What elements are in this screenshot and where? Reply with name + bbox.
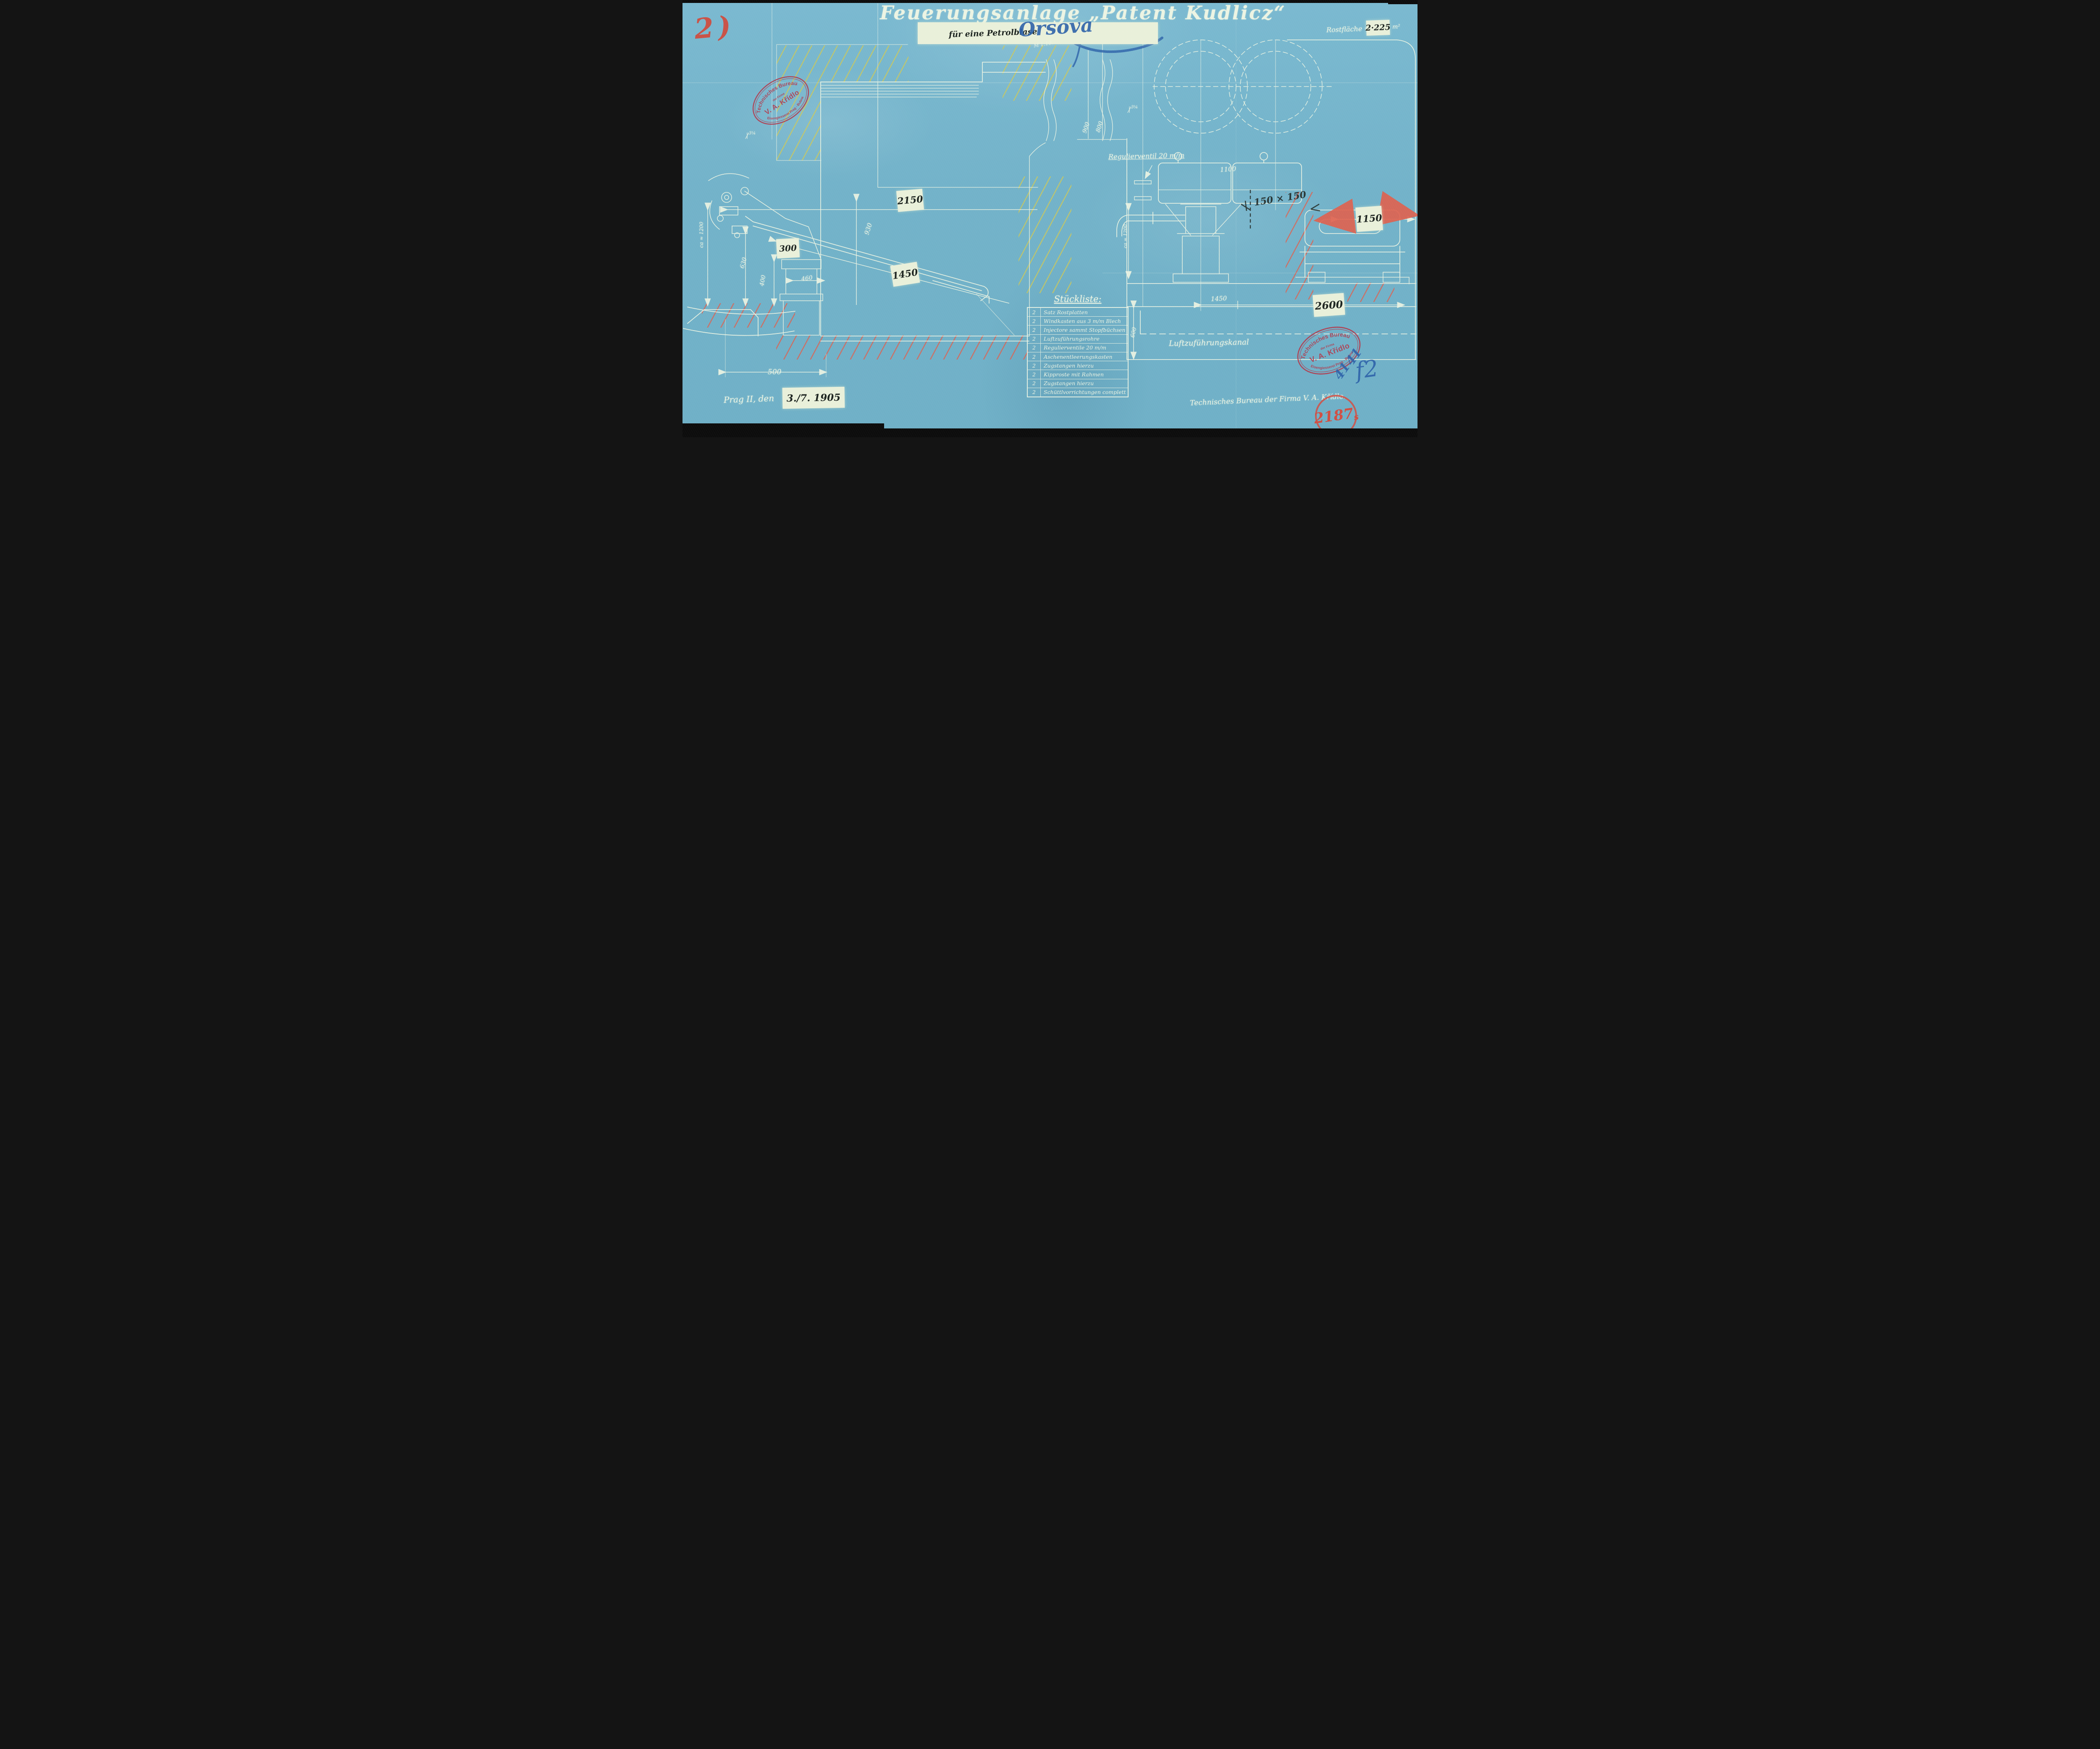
drawing-number: 2187 [1313, 405, 1354, 427]
row-qty: 2 [1028, 352, 1041, 361]
parts-list-row: 2Luftzuführungsrohre [1028, 334, 1128, 343]
row-qty: 2 [1028, 361, 1041, 370]
blueprint-sheet: 2) Feuerungsanlage „Patent Kudlicz“ für … [682, 0, 1417, 437]
row-desc: Injectore sammt Stopfbüchsen [1041, 327, 1128, 333]
photo-edge-bottom-left [682, 423, 884, 437]
row-desc: Kipproste mit Rahmen [1041, 371, 1128, 378]
dim-ca1200-left: ca ≈ 1200 [698, 222, 704, 248]
grate-area-unit: m² [1392, 24, 1400, 31]
dim-patch-2600: 2600 [1312, 293, 1345, 317]
photo-edge-top [682, 0, 1417, 3]
date-patch: 3./7. 1905 [782, 387, 845, 409]
parts-list-row: 2Windkasten aus 3 m/m Blech [1028, 316, 1128, 325]
row-desc: Windkasten aus 3 m/m Blech [1041, 318, 1128, 324]
photo-edge-top-right [1388, 0, 1417, 4]
dim-1100: 1100 [1220, 165, 1236, 174]
place-date-text: Prag II, den [724, 393, 774, 405]
parts-list-row: 2Schüttlvorrichtungen complett [1028, 388, 1128, 397]
parts-list-row: 2Kipproste mit Rahmen [1028, 370, 1128, 378]
parts-list: Stückliste: 2Satz Rostplatten 2Windkaste… [1027, 294, 1129, 397]
parts-list-title: Stückliste: [1027, 294, 1129, 304]
row-qty: 2 [1028, 370, 1041, 378]
row-desc: Zugstangen hierzu [1041, 380, 1128, 386]
blue-mark-flourish: f2 [1354, 355, 1380, 384]
dim-patch-1150: 1150 [1355, 206, 1383, 232]
row-qty: 2 [1028, 388, 1041, 397]
parts-list-row: 2Zugstangen hierzu [1028, 361, 1128, 370]
parts-list-row: 2Aschenentleerungskasten [1028, 352, 1128, 361]
parts-list-row: 2Zugstangen hierzu [1028, 379, 1128, 388]
dim-ca1200-right: ca = 1200 [1123, 224, 1128, 248]
row-qty: 2 [1028, 344, 1041, 352]
row-qty: 2 [1028, 335, 1041, 343]
dim-small-mark-left: 3¼ [749, 131, 756, 136]
row-desc: Regulierventile 20 m/m [1041, 344, 1128, 351]
photo-edge-bottom [884, 428, 1417, 437]
dim-patch-2150: 2150 [896, 189, 924, 212]
dim-small-mark-right: 3¼ [1131, 105, 1138, 110]
parts-list-row: 2Injectore sammt Stopfbüchsen [1028, 325, 1128, 334]
air-duct-annotation: Luftzuführungskanal [1169, 338, 1249, 348]
dim-1450-right: 1450 [1211, 294, 1227, 303]
row-qty: 2 [1028, 308, 1041, 316]
dim-500: 500 [768, 368, 781, 376]
regulator-valve-annotation: Regulierventil 20 m/m [1108, 151, 1184, 160]
row-desc: Satz Rostplatten [1041, 309, 1128, 315]
row-desc: Aschenentleerungskasten [1041, 354, 1128, 360]
row-qty: 2 [1028, 326, 1041, 334]
row-qty: 2 [1028, 379, 1041, 388]
row-desc: Schüttlvorrichtungen complett [1041, 389, 1128, 395]
sheet-number-mark: 2) [693, 9, 737, 45]
parts-list-row: 2Satz Rostplatten [1028, 308, 1128, 316]
grate-area-label: Rostfläche = [1326, 24, 1370, 34]
row-desc: Zugstangen hierzu [1041, 362, 1128, 369]
dim-patch-1450-left: 1450 [890, 262, 920, 286]
dim-patch-300: 300 [776, 238, 800, 259]
row-qty: 2 [1028, 317, 1041, 325]
parts-list-row: 2Regulierventile 20 m/m [1028, 343, 1128, 352]
grate-area-value-patch: 2·225 [1366, 20, 1390, 36]
parts-list-table: 2Satz Rostplatten 2Windkasten aus 3 m/m … [1027, 307, 1129, 397]
row-desc: Luftzuführungsrohre [1041, 336, 1128, 342]
